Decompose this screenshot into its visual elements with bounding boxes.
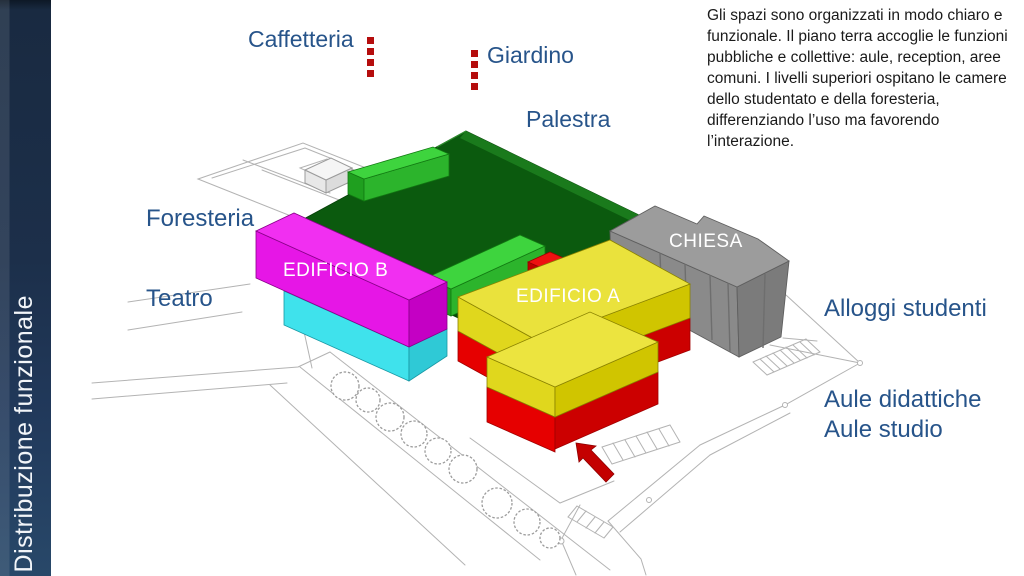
label-aule-didattiche: Aule didattiche <box>824 386 981 414</box>
label-teatro: Teatro <box>146 285 213 313</box>
caffetteria-divider-dots-icon <box>367 37 374 77</box>
label-edificio-b: EDIFICIO B <box>283 260 388 282</box>
label-aule-studio: Aule studio <box>824 416 943 444</box>
description-text: Gli spazi sono organizzati in modo chiar… <box>707 6 1010 152</box>
label-giardino: Giardino <box>487 42 574 69</box>
label-alloggi-studenti: Alloggi studenti <box>824 295 987 323</box>
entrance-arrow-icon <box>576 443 614 482</box>
label-foresteria: Foresteria <box>146 205 254 233</box>
label-caffetteria: Caffetteria <box>248 26 354 53</box>
label-edificio-a: EDIFICIO A <box>516 286 620 308</box>
existing-structure <box>305 158 352 193</box>
label-chiesa: CHIESA <box>669 231 743 253</box>
giardino-divider-dots-icon <box>471 50 478 90</box>
slide: Distribuzione funzionale <box>0 0 1024 576</box>
label-palestra: Palestra <box>526 106 610 133</box>
